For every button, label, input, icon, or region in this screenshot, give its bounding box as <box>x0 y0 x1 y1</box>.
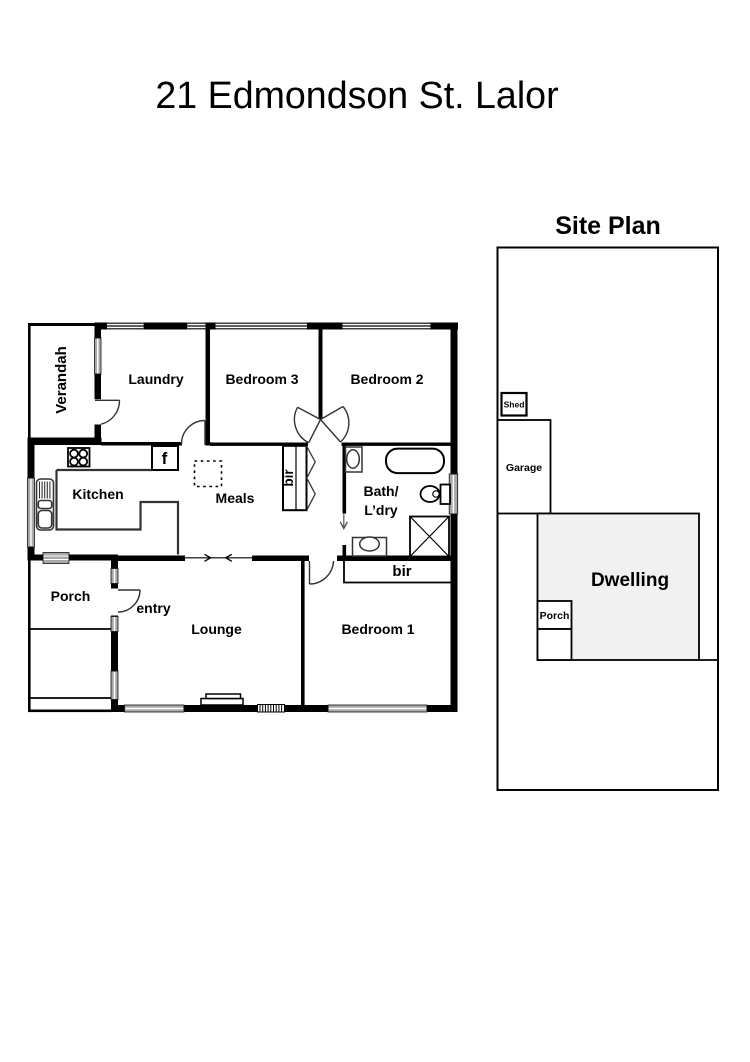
svg-text:bir: bir <box>392 563 411 580</box>
svg-text:Shed: Shed <box>504 400 525 410</box>
svg-text:L’dry: L’dry <box>364 502 398 518</box>
svg-text:f: f <box>162 449 168 468</box>
svg-text:Porch: Porch <box>51 588 91 604</box>
svg-text:Bedroom 1: Bedroom 1 <box>341 621 414 637</box>
svg-text:Bedroom 2: Bedroom 2 <box>350 371 423 387</box>
svg-text:Meals: Meals <box>216 490 255 506</box>
svg-text:Verandah: Verandah <box>53 346 70 414</box>
svg-text:bir: bir <box>281 469 296 487</box>
svg-text:Dwelling: Dwelling <box>591 570 669 591</box>
svg-text:Garage: Garage <box>506 462 542 474</box>
svg-text:Site Plan: Site Plan <box>555 212 661 240</box>
svg-text:Kitchen: Kitchen <box>72 486 123 502</box>
svg-text:Bedroom 3: Bedroom 3 <box>225 371 298 387</box>
svg-text:Bath/: Bath/ <box>364 483 399 499</box>
svg-text:Porch: Porch <box>540 610 570 622</box>
svg-text:Laundry: Laundry <box>128 371 183 387</box>
svg-text:entry: entry <box>136 600 170 616</box>
svg-text:21 Edmondson St. Lalor: 21 Edmondson St. Lalor <box>155 74 558 116</box>
svg-text:Lounge: Lounge <box>191 621 242 637</box>
